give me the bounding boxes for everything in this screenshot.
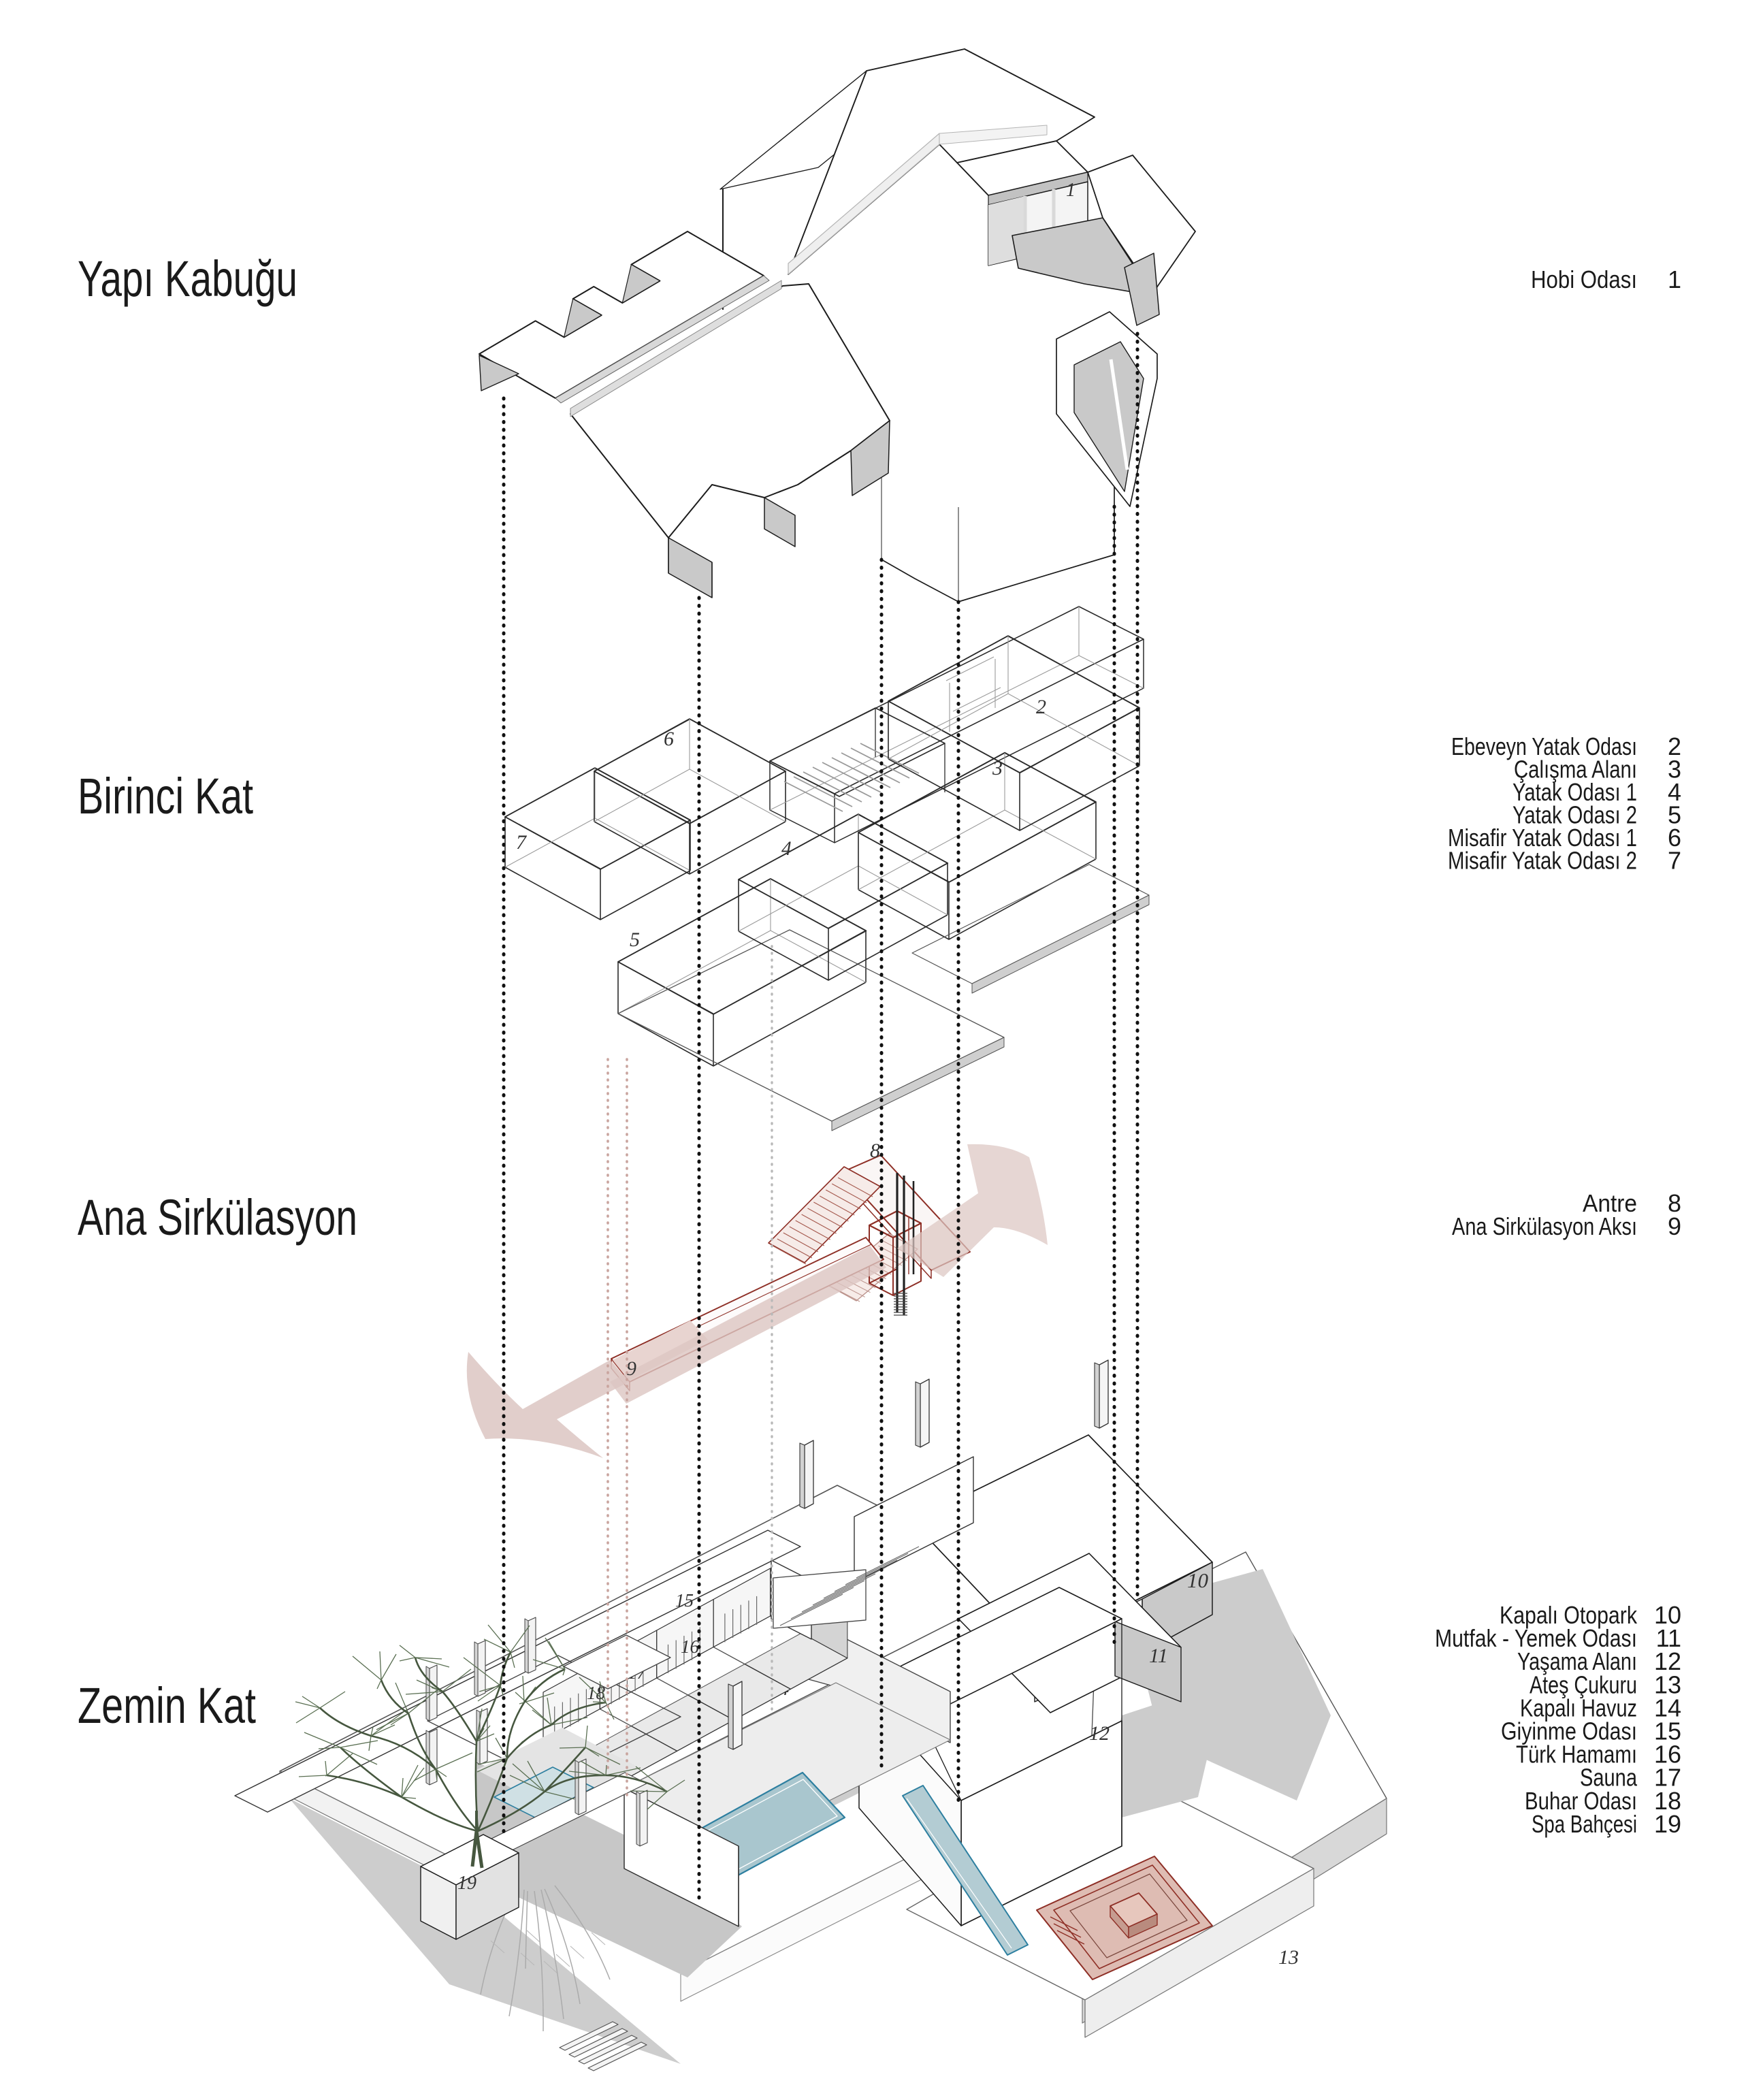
svg-text:9: 9: [1668, 1212, 1681, 1240]
svg-text:6: 6: [664, 728, 674, 750]
svg-text:19: 19: [1654, 1810, 1681, 1838]
svg-text:1: 1: [1668, 265, 1681, 293]
svg-text:Hobi Odası: Hobi Odası: [1531, 265, 1637, 293]
svg-text:Ana Sirkülasyon Aksı: Ana Sirkülasyon Aksı: [1452, 1212, 1637, 1240]
svg-text:9: 9: [626, 1357, 636, 1380]
svg-text:Misafir Yatak Odası 2: Misafir Yatak Odası 2: [1448, 847, 1637, 875]
svg-text:19: 19: [457, 1873, 476, 1894]
svg-text:15: 15: [675, 1590, 694, 1611]
svg-text:4: 4: [781, 837, 792, 860]
svg-text:Yapı Kabuğu: Yapı Kabuğu: [78, 251, 297, 307]
svg-text:7: 7: [1668, 847, 1681, 875]
svg-text:12: 12: [1089, 1722, 1110, 1745]
svg-text:Zemin Kat: Zemin Kat: [78, 1677, 256, 1734]
svg-text:1: 1: [1066, 180, 1075, 201]
svg-text:2: 2: [1036, 696, 1046, 718]
svg-text:5: 5: [630, 928, 640, 951]
svg-text:11: 11: [1149, 1645, 1168, 1667]
svg-text:Birinci Kat: Birinci Kat: [78, 768, 253, 824]
svg-text:8: 8: [870, 1140, 880, 1162]
svg-text:Spa Bahçesi: Spa Bahçesi: [1532, 1810, 1637, 1838]
svg-text:Ana Sirkülasyon: Ana Sirkülasyon: [78, 1189, 357, 1246]
svg-text:7: 7: [516, 831, 528, 854]
svg-text:16: 16: [681, 1636, 700, 1657]
svg-text:13: 13: [1278, 1946, 1299, 1969]
svg-text:10: 10: [1187, 1568, 1209, 1592]
